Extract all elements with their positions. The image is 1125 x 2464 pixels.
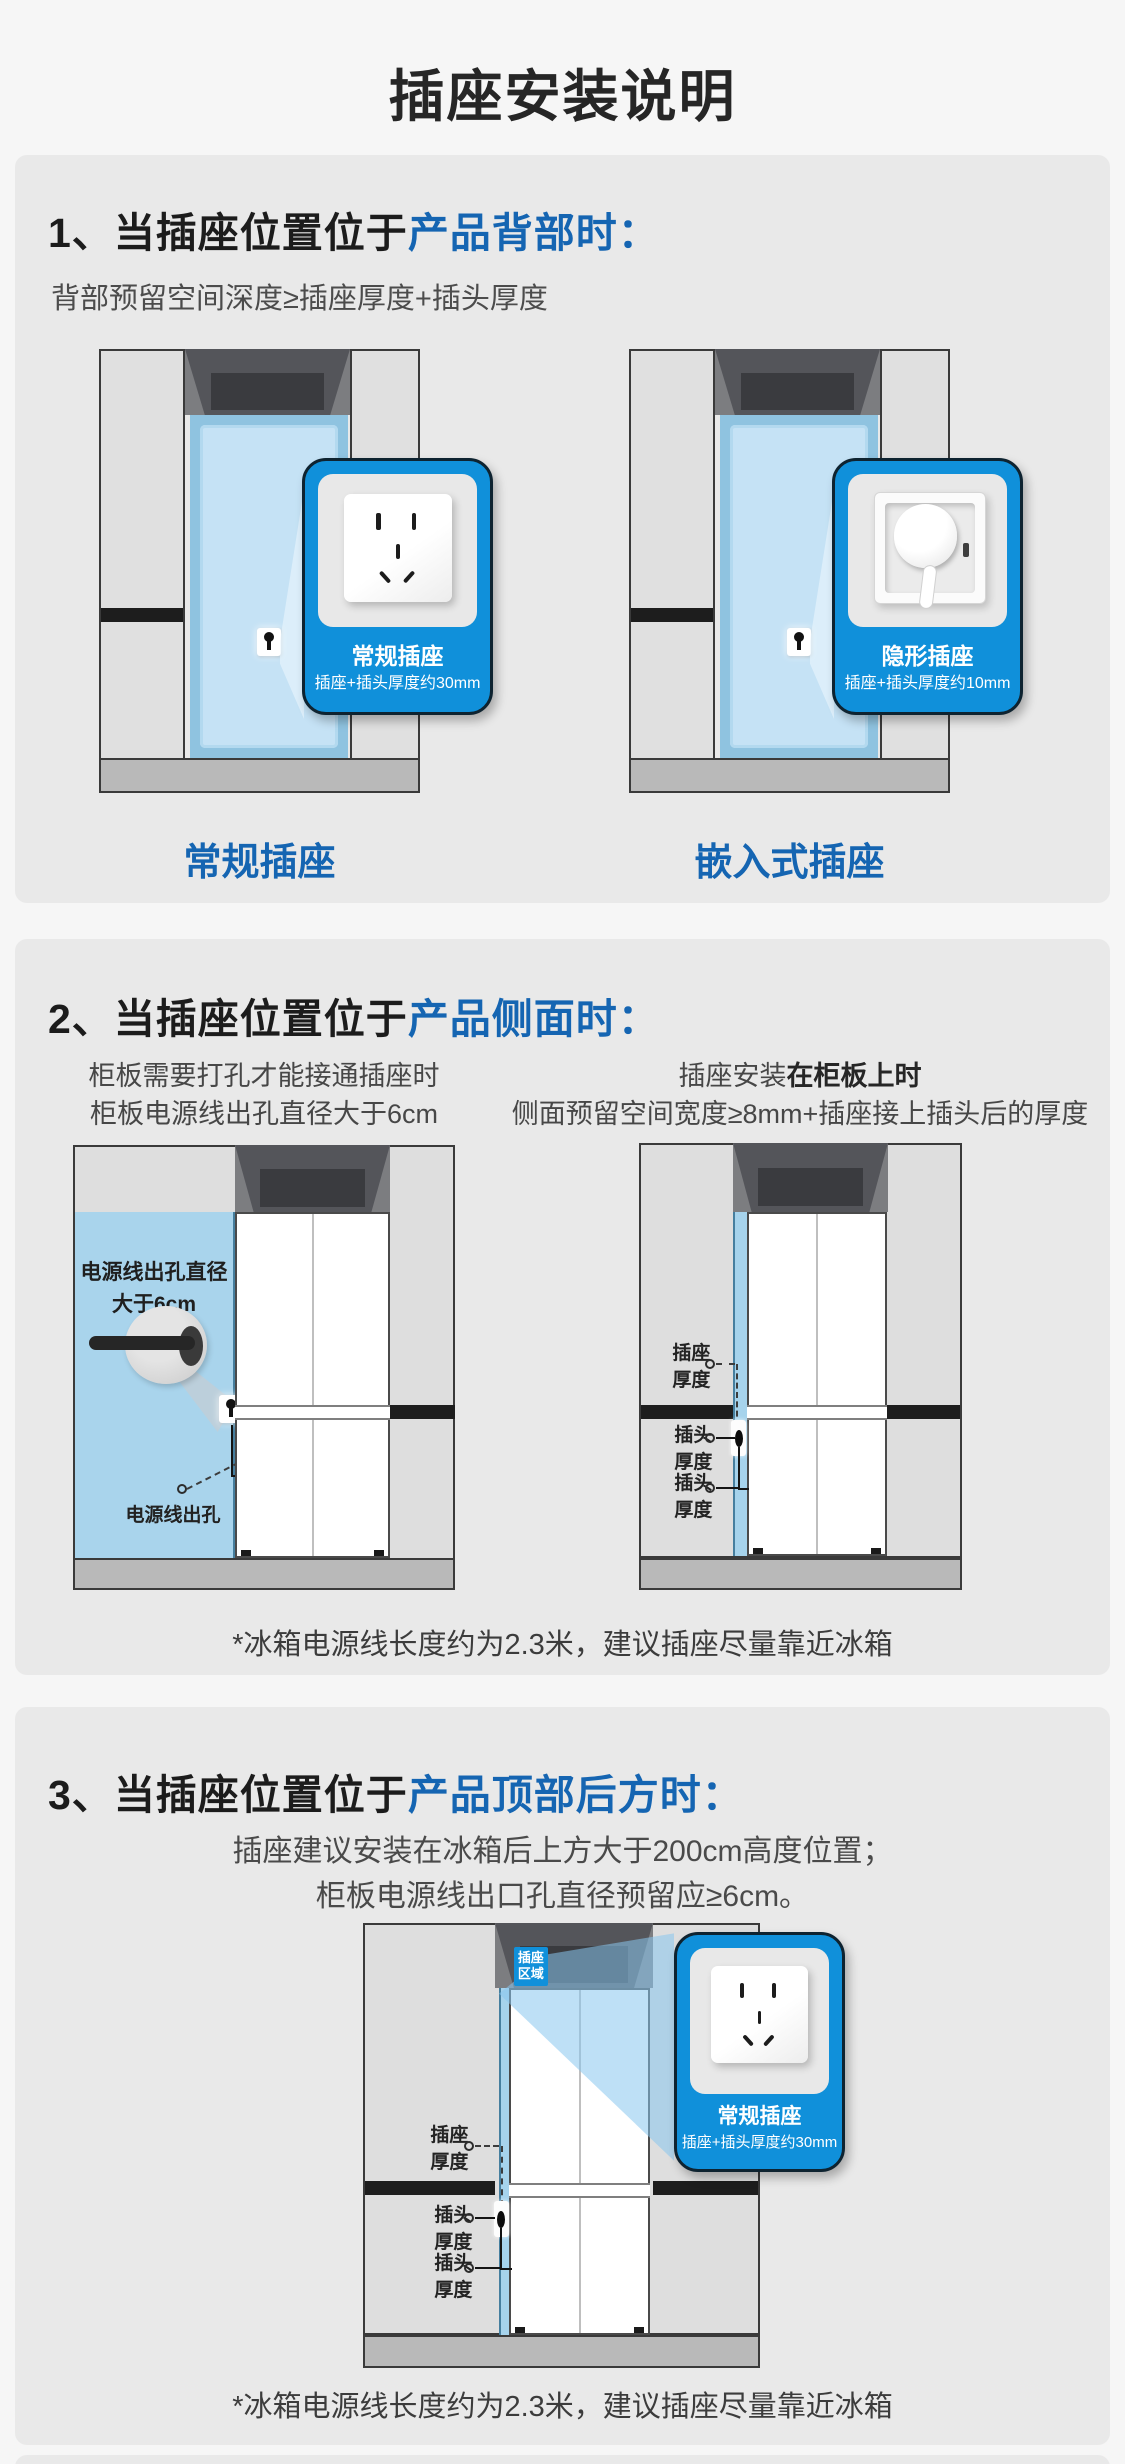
cabinet-base: [99, 758, 420, 793]
wall-socket-icon: [257, 628, 281, 656]
callout-title: 隐形插座: [835, 637, 1020, 671]
leader-dot: [705, 1433, 715, 1443]
leader-dot: [464, 2141, 474, 2151]
socket-area-badge: 插座区域: [514, 1947, 548, 1986]
socket-pin: [412, 513, 416, 529]
section-3-card: 3、当插座位置位于产品顶部后方时： 插座建议安装在冰箱后上方大于200cm高度位…: [15, 1707, 1110, 2445]
plug-icon: [497, 2211, 505, 2228]
cabinet-base: [629, 758, 950, 793]
left-column-intro: 柜板需要打孔才能接通插座时 柜板电源线出孔直径大于6cm: [64, 1057, 464, 1133]
cabinet-side-board: 电源线出孔直径 大于6cm 电源线出孔: [75, 1212, 235, 1558]
callout-subtitle: 插座+插头厚度约30mm: [305, 669, 490, 693]
vent-grille: [758, 1168, 863, 1207]
socket-pin: [742, 2034, 753, 2046]
socket-pin: [402, 570, 415, 583]
measure-line-end: [500, 2268, 512, 2270]
plug-head: [894, 504, 958, 568]
cabinet-divider-band: [365, 2181, 495, 2195]
socket-callout: 常规插座 插座+插头厚度约30mm: [674, 1932, 845, 2172]
callout-subtitle: 插座+插头厚度约10mm: [835, 669, 1020, 693]
cabinet-left-panel: [629, 349, 715, 760]
cabinet-top-vent: [185, 349, 350, 415]
instruction-sheet: 插座安装说明 1、当插座位置位于产品背部时： 背部预留空间深度≥插座厚度+插头厚…: [0, 0, 1125, 2464]
measure-line: [738, 1447, 740, 1490]
section-3-number: 3、: [48, 1772, 114, 1818]
right-intro-line1: 插座安装在柜板上时: [500, 1057, 1100, 1095]
leader-dot: [464, 2263, 474, 2273]
section-2-number: 2、: [48, 996, 114, 1042]
cabinet-base: [73, 1558, 455, 1590]
socket-callout: 隐形插座 插座+插头厚度约10mm: [832, 458, 1023, 715]
callout-panel: [690, 1948, 829, 2094]
cabinet-top-vent: [235, 1145, 390, 1212]
section-3-note: *冰箱电源线长度约为2.3米，建议插座尽量靠近冰箱: [15, 2383, 1110, 2425]
fridge-foot: [634, 2327, 644, 2333]
cabinet-top-vent: [733, 1143, 888, 1212]
section-3-heading-highlight: 产品顶部后方时：: [408, 1772, 744, 1818]
section-1-card: 1、当插座位置位于产品背部时： 背部预留空间深度≥插座厚度+插头厚度: [15, 155, 1110, 903]
fridge-door-divider: [747, 1405, 887, 1420]
cabinet-divider-band: [641, 1405, 733, 1419]
socket-image: [344, 494, 452, 602]
leader-dot: [705, 1483, 715, 1493]
section-1-number: 1、: [48, 210, 114, 256]
section-3-heading: 3、当插座位置位于产品顶部后方时：: [48, 1761, 744, 1821]
fridge: [235, 1212, 390, 1558]
fridge-foot: [374, 1550, 384, 1556]
leader-line: [716, 1487, 738, 1489]
socket-pin: [764, 2034, 775, 2046]
diagram-back-recessed: 隐形插座 插座+插头厚度约10mm 嵌入式插座: [629, 349, 950, 793]
leader-dot: [705, 1359, 715, 1369]
leader-line: [475, 2267, 501, 2269]
vent-grille: [741, 373, 853, 410]
exit-hole-dot: [177, 1484, 187, 1494]
exit-hole-label: 电源线出孔: [93, 1500, 253, 1527]
diagram-top-rear: 插座区域 插座厚度 插头厚度 插头厚度: [363, 1923, 760, 2368]
vent-grille: [260, 1169, 365, 1207]
wall-socket-icon: [787, 628, 811, 656]
section-1-heading-text: 当插座位置位于: [114, 210, 408, 256]
plug-slot: [963, 543, 969, 557]
callout-panel: [318, 474, 477, 627]
callout-title: 常规插座: [677, 2100, 842, 2130]
fridge-door-divider: [509, 2183, 650, 2198]
fridge-foot: [871, 1548, 881, 1554]
section-3-intro: 插座建议安装在冰箱后上方大于200cm高度位置； 柜板电源线出口孔直径预留应≥6…: [15, 1829, 1110, 1919]
plug-thickness-label: 插头厚度: [671, 1471, 716, 1525]
section-2-heading-text: 当插座位置位于: [114, 996, 408, 1042]
page-title: 插座安装说明: [0, 52, 1125, 133]
plug-thickness-label: 插头厚度: [671, 1423, 716, 1477]
socket-pin: [379, 570, 392, 583]
section-1-heading: 1、当插座位置位于产品背部时：: [48, 199, 660, 259]
section-3-intro-line1: 插座建议安装在冰箱后上方大于200cm高度位置；: [15, 1829, 1110, 1874]
cabinet-base: [363, 2335, 760, 2368]
section-1-heading-highlight: 产品背部时：: [408, 210, 660, 256]
socket-image: [711, 1966, 808, 2063]
diagram-caption: 常规插座: [99, 831, 420, 886]
socket-thickness-label: 插座厚度: [427, 2123, 472, 2177]
measure-line: [500, 2228, 502, 2270]
section-3-intro-line2: 柜板电源线出口孔直径预留应≥6cm。: [15, 1874, 1110, 1919]
socket-pin: [740, 1983, 744, 1998]
callout-title: 常规插座: [305, 637, 490, 671]
cabinet-divider-band: [653, 2181, 758, 2195]
vent-grille: [211, 373, 323, 410]
cabinet-divider-band: [631, 608, 713, 622]
fridge-door-split: [816, 1214, 818, 1554]
cabinet-base: [639, 1558, 962, 1590]
thickness-dashed-line: [501, 2146, 503, 2206]
power-cord-icon: [89, 1336, 195, 1350]
section-3-heading-text: 当插座位置位于: [114, 1772, 408, 1818]
measure-line-end: [738, 1488, 749, 1490]
fridge-foot: [241, 1550, 251, 1556]
cabinet-left-panel: [99, 349, 185, 760]
diagram-back-regular: 常规插座 插座+插头厚度约30mm 常规插座: [99, 349, 420, 793]
next-card-partial: [15, 2455, 1110, 2464]
left-intro-line1: 柜板需要打孔才能接通插座时: [64, 1057, 464, 1095]
fridge-foot: [515, 2327, 525, 2333]
socket-pin: [772, 1983, 776, 1998]
recessed-plug-image: [874, 492, 986, 604]
section-2-note: *冰箱电源线长度约为2.3米，建议插座尽量靠近冰箱: [15, 1621, 1110, 1663]
leader-dashed: [716, 1363, 735, 1365]
leader-dot: [464, 2213, 474, 2223]
fridge-door-divider: [235, 1405, 390, 1420]
plug-thickness-label: 插头厚度: [431, 2251, 476, 2305]
section-2-heading-highlight: 产品侧面时：: [408, 996, 660, 1042]
socket-pin: [376, 513, 380, 529]
callout-panel: [848, 474, 1007, 627]
socket-pin: [758, 2011, 762, 2025]
cabinet-divider-band: [101, 608, 183, 622]
fridge-foot: [753, 1548, 763, 1554]
thickness-dashed-line: [736, 1364, 738, 1426]
leader-line: [475, 2217, 495, 2219]
callout-subtitle: 插座+插头厚度约30mm: [677, 2131, 842, 2152]
plug-thickness-label: 插头厚度: [431, 2203, 476, 2257]
diagram-side-socket: 插座厚度 插头厚度 插头厚度: [639, 1143, 962, 1590]
right-intro-line2: 侧面预留空间宽度≥8mm+插座接上插头后的厚度: [500, 1095, 1100, 1133]
right-column-intro: 插座安装在柜板上时 侧面预留空间宽度≥8mm+插座接上插头后的厚度: [500, 1057, 1100, 1133]
leader-line: [716, 1437, 735, 1439]
diagram-side-hole: 电源线出孔直径 大于6cm 电源线出孔: [73, 1145, 455, 1590]
leader-dashed: [475, 2145, 499, 2147]
cabinet-divider-band: [390, 1405, 455, 1419]
plug-icon: [735, 1430, 743, 1447]
diagram-caption: 嵌入式插座: [629, 831, 950, 886]
cabinet-top-vent: [715, 349, 880, 415]
left-intro-line2: 柜板电源线出孔直径大于6cm: [64, 1095, 464, 1133]
section-2-heading: 2、当插座位置位于产品侧面时：: [48, 985, 660, 1045]
fridge: [747, 1212, 887, 1556]
socket-pin: [396, 544, 400, 559]
fridge-door-split: [312, 1214, 314, 1556]
socket-callout: 常规插座 插座+插头厚度约30mm: [302, 458, 493, 715]
section-1-subtitle: 背部预留空间深度≥插座厚度+插头厚度: [51, 275, 548, 317]
cabinet-divider-band: [887, 1405, 960, 1419]
section-2-card: 2、当插座位置位于产品侧面时： 柜板需要打孔才能接通插座时 柜板电源线出孔直径大…: [15, 939, 1110, 1675]
